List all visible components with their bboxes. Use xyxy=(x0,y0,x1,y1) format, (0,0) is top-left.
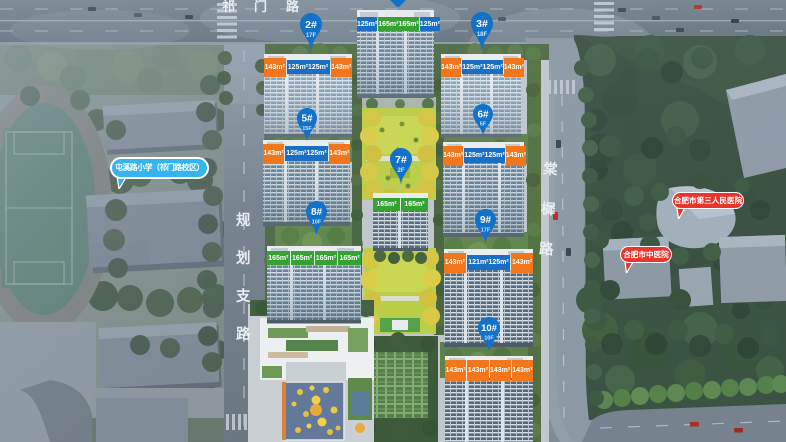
svg-text:17F: 17F xyxy=(306,33,317,39)
svg-text:3#: 3# xyxy=(476,18,488,30)
svg-text:10F: 10F xyxy=(484,336,494,342)
svg-text:10#: 10# xyxy=(481,323,498,334)
svg-text:5#: 5# xyxy=(301,114,313,125)
svg-text:18F: 18F xyxy=(477,32,488,38)
svg-text:2F: 2F xyxy=(397,168,404,174)
svg-text:5F: 5F xyxy=(480,122,487,128)
svg-text:10F: 10F xyxy=(312,220,322,226)
svg-text:15F: 15F xyxy=(302,126,312,132)
svg-text:6#: 6# xyxy=(477,110,489,121)
svg-text:9#: 9# xyxy=(480,215,492,226)
svg-text:7#: 7# xyxy=(395,154,407,166)
svg-text:2#: 2# xyxy=(305,19,317,31)
svg-text:8#: 8# xyxy=(311,207,323,218)
svg-text:17F: 17F xyxy=(481,228,491,234)
